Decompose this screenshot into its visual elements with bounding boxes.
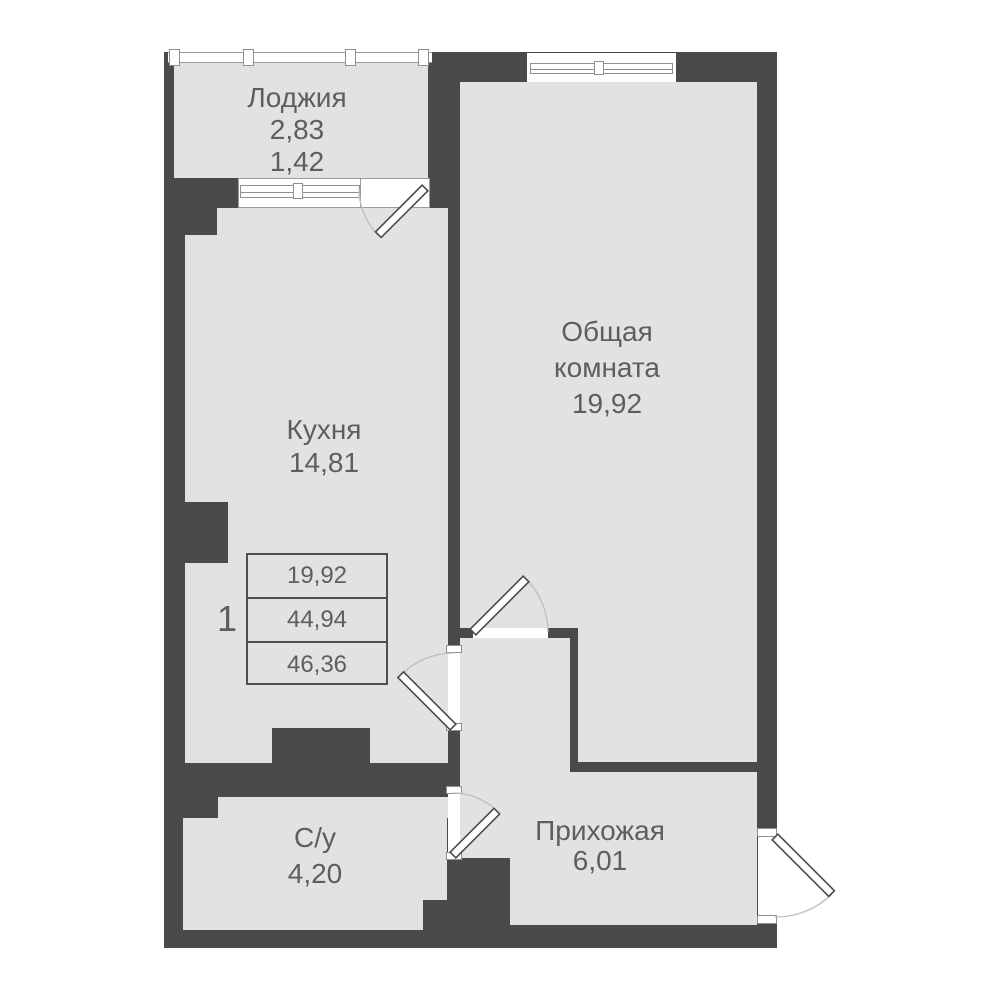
glazing-post-2 — [243, 49, 254, 66]
loggia-area-bottom: 1,42 — [270, 148, 325, 176]
floor-plan: 19,92 44,94 46,36 1 Лоджия 2,83 1,42 Кух… — [0, 0, 1000, 1000]
room-bathroom-top — [218, 797, 448, 818]
apartment-number: 1 — [217, 601, 237, 637]
hallway-area: 6,01 — [573, 847, 628, 875]
area-table-row-living-total: 44,94 — [248, 599, 386, 643]
room-living-ext — [578, 628, 757, 762]
loggia-label: Лоджия — [247, 84, 346, 112]
glazing-post-4 — [418, 49, 429, 66]
jamb-entrance-bottom — [757, 915, 777, 924]
area-table-row-total: 46,36 — [248, 643, 386, 687]
opening-living-door — [473, 628, 548, 638]
opening-kitchen-door — [448, 652, 460, 724]
jamb-bathroom-bottom — [446, 852, 462, 860]
wall-block-hallway — [448, 858, 510, 925]
loggia-area-top: 2,83 — [270, 116, 325, 144]
glazing-post-3 — [345, 49, 356, 66]
glazing-post-1 — [169, 49, 180, 66]
hallway-label: Прихожая — [535, 817, 665, 845]
entrance-door-arc — [775, 894, 832, 917]
kitchen-area: 14,81 — [289, 449, 359, 477]
living-area: 19,92 — [572, 390, 642, 418]
living-label-line1: Общая — [561, 318, 653, 346]
opening-bathroom-door — [448, 793, 460, 853]
bathroom-area: 4,20 — [288, 860, 343, 888]
jamb-entrance-top — [757, 828, 777, 837]
jamb-kitchen-top — [446, 645, 462, 653]
room-kitchen-upper — [217, 208, 448, 235]
living-area-value: 19,92 — [287, 562, 347, 590]
room-bathroom-right — [423, 818, 447, 900]
bathroom-label: С/у — [294, 824, 336, 852]
living-total-value: 44,94 — [287, 606, 347, 634]
jamb-kitchen-bottom — [446, 723, 462, 731]
opening-entrance-door — [758, 836, 777, 916]
living-label-line2: комната — [554, 354, 660, 382]
total-area-value: 46,36 — [287, 651, 347, 679]
jamb-bathroom-top — [446, 786, 462, 794]
vent-shaft-kitchen — [272, 728, 370, 763]
entrance-door-leaf — [772, 834, 834, 896]
kitchen-window-divider — [293, 183, 303, 199]
living-window-divider — [594, 61, 604, 75]
area-table: 19,92 44,94 46,36 — [246, 553, 388, 685]
area-table-row-living: 19,92 — [248, 555, 386, 599]
loggia-glazing — [168, 52, 432, 63]
balcony-unit-separator — [360, 179, 361, 207]
kitchen-label: Кухня — [287, 416, 362, 444]
wall-ledge-left — [164, 502, 228, 563]
